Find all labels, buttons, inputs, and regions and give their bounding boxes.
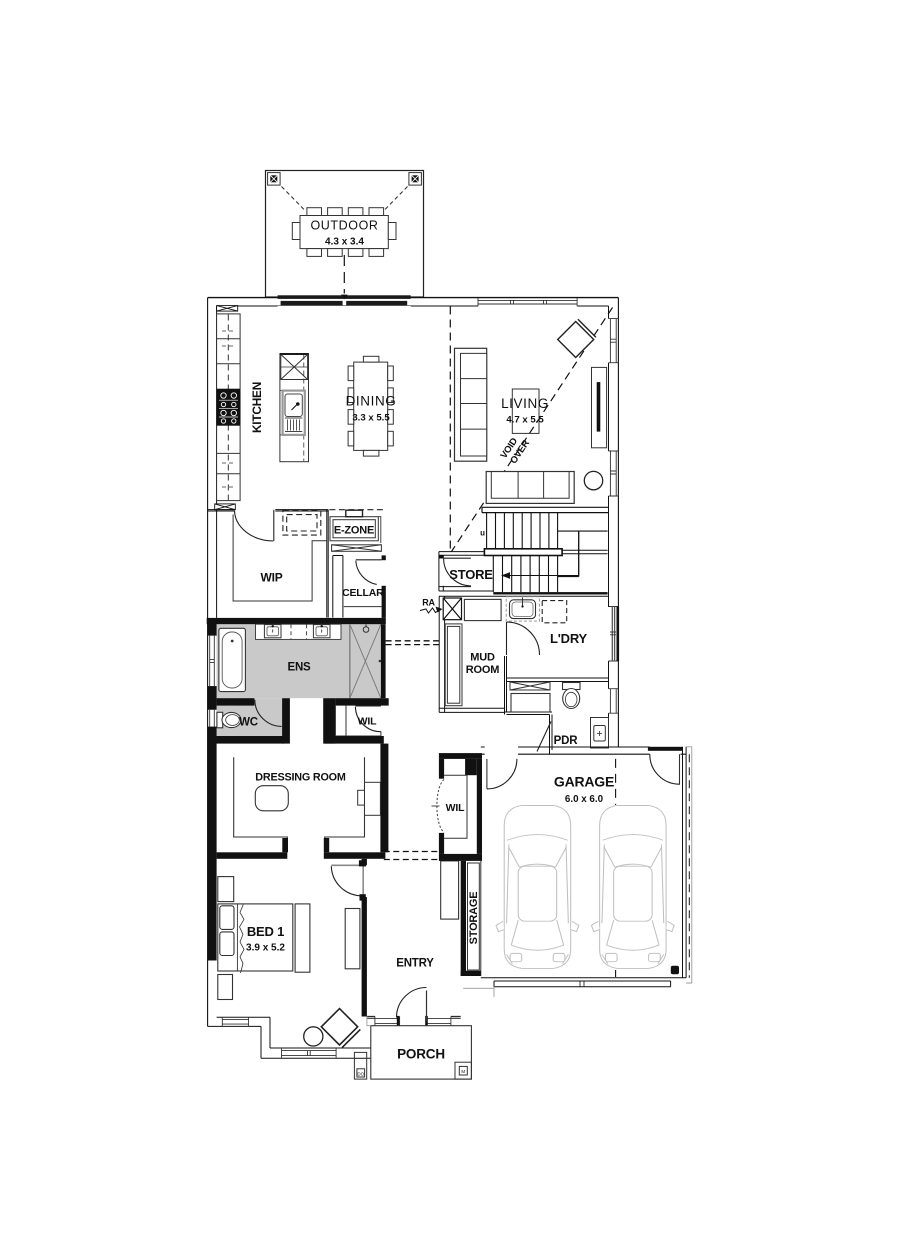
svg-text:KITCHEN: KITCHEN	[250, 382, 264, 433]
svg-text:PDR: PDR	[554, 735, 579, 747]
svg-text:GARAGE: GARAGE	[554, 774, 614, 790]
svg-text:CELLAR: CELLAR	[342, 587, 384, 599]
svg-text:3.3 x 5.5: 3.3 x 5.5	[352, 412, 390, 423]
svg-text:OUTDOOR: OUTDOOR	[310, 219, 378, 233]
svg-text:M: M	[461, 1069, 465, 1074]
svg-text:4.7 x 5.5: 4.7 x 5.5	[506, 414, 544, 425]
svg-text:LIVING: LIVING	[501, 396, 549, 411]
svg-text:u: u	[480, 529, 485, 538]
svg-text:ENTRY: ENTRY	[396, 958, 434, 970]
svg-text:E-ZONE: E-ZONE	[334, 525, 374, 537]
svg-text:L'DRY: L'DRY	[550, 631, 588, 646]
svg-text:PORCH: PORCH	[397, 1047, 445, 1062]
svg-text:G: G	[673, 969, 678, 975]
svg-text:6.0 x 6.0: 6.0 x 6.0	[565, 794, 604, 805]
svg-text:ROOM: ROOM	[466, 664, 499, 676]
svg-text:4.3 x 3.4: 4.3 x 3.4	[325, 237, 364, 248]
svg-text:DO: DO	[357, 1071, 364, 1076]
svg-text:MUD: MUD	[470, 652, 495, 664]
svg-text:RA: RA	[422, 598, 435, 608]
svg-text:DRESSING ROOM: DRESSING ROOM	[255, 772, 346, 784]
svg-text:3.9 x 5.2: 3.9 x 5.2	[246, 943, 285, 954]
svg-text:WIL: WIL	[358, 716, 377, 728]
svg-text:WC: WC	[239, 717, 258, 729]
svg-text:WIP: WIP	[260, 571, 282, 585]
svg-text:STORE: STORE	[449, 567, 493, 582]
svg-text:WIL: WIL	[446, 802, 465, 814]
svg-text:STORAGE: STORAGE	[468, 892, 480, 945]
svg-text:BED 1: BED 1	[247, 924, 284, 939]
svg-text:ENS: ENS	[287, 662, 311, 674]
svg-text:DINING: DINING	[346, 393, 397, 408]
